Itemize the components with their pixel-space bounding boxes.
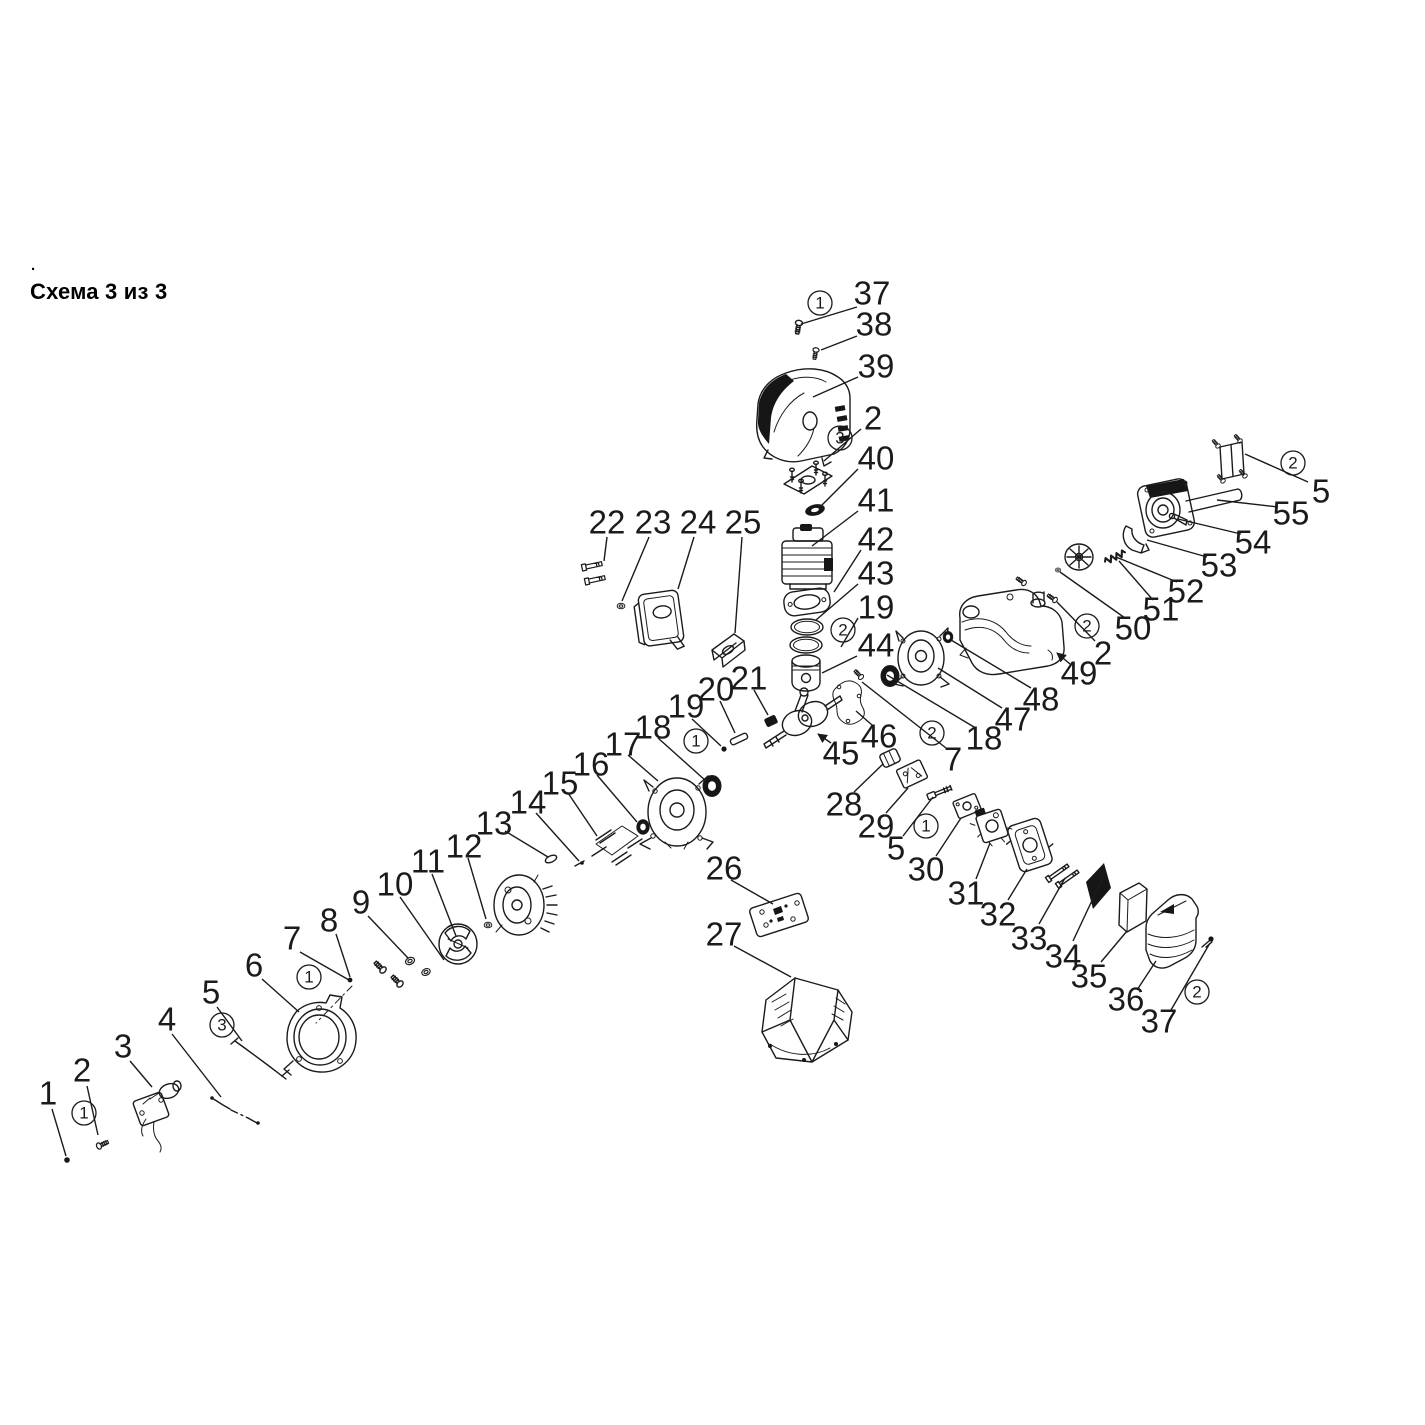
part-47-crankcase-right: [894, 628, 949, 687]
svg-text:1: 1: [79, 1104, 88, 1123]
svg-text:2: 2: [1192, 983, 1201, 1002]
part-number-2-44: 2: [1094, 635, 1112, 672]
part-number-45-37: 45: [823, 735, 860, 772]
part-number-7-16: 7: [283, 920, 301, 957]
part-number-24-30: 24: [680, 504, 717, 541]
part-number-2-11: 2: [73, 1052, 91, 1089]
part-3-ignition-coil: [132, 1081, 181, 1152]
part-19-dot: [721, 746, 726, 751]
leader-line-23-29: [622, 537, 649, 601]
part-number-40-4: 40: [858, 440, 895, 477]
leader-line-9-18: [368, 916, 408, 958]
part-screw-38: [811, 347, 819, 359]
part-12-nut: [484, 922, 492, 928]
callout-circled-1-0: 1: [808, 291, 832, 315]
part-number-41-5: 41: [858, 482, 895, 519]
part-15-16-studs: [592, 826, 642, 865]
part-number-8-17: 8: [320, 902, 338, 939]
svg-text:1: 1: [304, 968, 313, 987]
part-number-30-55: 30: [908, 851, 945, 888]
callout-circled-1-6: 1: [684, 729, 708, 753]
leader-line-53-48: [1147, 540, 1207, 557]
callout-circled-2-9: 2: [1281, 451, 1305, 475]
svg-text:3: 3: [835, 429, 844, 448]
leader-line-24-30: [678, 537, 694, 589]
part-43-piston-rings: [790, 619, 823, 653]
part-number-3-12: 3: [114, 1028, 132, 1065]
part-4-throttle-rod: [210, 1096, 260, 1125]
part-number-52-47: 52: [1168, 573, 1205, 610]
leader-line-1-10: [52, 1109, 66, 1156]
leader-line-39-2: [813, 377, 858, 397]
part-number-38-1: 38: [856, 306, 893, 343]
leader-line-22-28: [604, 537, 607, 561]
svg-text:2: 2: [838, 621, 847, 640]
svg-text:3: 3: [217, 1016, 226, 1035]
part-41-cylinder: [782, 524, 833, 589]
part-number-36-61: 36: [1108, 981, 1145, 1018]
part-number-54-49: 54: [1235, 524, 1272, 561]
callout-circled-2-11: 2: [1185, 980, 1209, 1004]
part-number-44-9: 44: [858, 627, 895, 664]
part-number-5-51: 5: [1312, 473, 1330, 510]
leader-line-12-21: [468, 858, 486, 919]
part-number-53-48: 53: [1201, 547, 1238, 584]
part-number-27-36: 27: [706, 916, 743, 953]
part-number-7-39: 7: [944, 741, 962, 778]
leader-line-44-9: [822, 656, 857, 673]
part-number-22-28: 22: [589, 504, 626, 541]
part-number-5-14: 5: [202, 974, 220, 1011]
part-16-seal: [637, 820, 650, 835]
part-23-nut: [617, 603, 625, 609]
diagram-page: . Схема 3 из 3: [0, 0, 1425, 1425]
part-number-42-6: 42: [858, 521, 895, 558]
part-number-21-34: 21: [731, 660, 768, 697]
part-48-fuel-tank: [960, 589, 1064, 674]
part-2-tank-screw-b: [1046, 593, 1058, 604]
part-55-clutch-drum: [1136, 477, 1242, 538]
leader-line-11-20: [432, 874, 456, 936]
leader-line-25-31: [735, 537, 742, 633]
leader-line-33-58: [1039, 878, 1065, 924]
leader-line-4-13: [172, 1034, 221, 1097]
part-number-4-13: 4: [158, 1001, 176, 1038]
part-32-air-filter-base: [1002, 815, 1059, 874]
part-number-26-35: 26: [706, 850, 743, 887]
part-22-muffler-bolts: [581, 560, 605, 585]
callout-circled-2-7: 2: [920, 721, 944, 745]
part-5-stop-wire: [231, 1038, 289, 1079]
part-24-muffler: [633, 590, 686, 655]
part-2-screw-left: [96, 1139, 110, 1150]
part-number-1-10: 1: [39, 1075, 57, 1112]
callout-circled-1-10: 1: [914, 814, 938, 838]
svg-text:1: 1: [815, 294, 824, 313]
part-44-piston: [792, 655, 820, 691]
svg-text:2: 2: [1082, 617, 1091, 636]
part-36-air-filter-cover: [1146, 895, 1198, 968]
part-7-crankcase-screw: [853, 669, 865, 681]
part-33-screws: [1045, 863, 1079, 889]
part-number-6-15: 6: [245, 947, 263, 984]
leader-line-6-15: [262, 979, 299, 1012]
part-50-washer: [1055, 568, 1061, 572]
part-number-19-8: 19: [858, 589, 895, 626]
svg-text:1: 1: [921, 817, 930, 836]
part-9-washer: [404, 956, 415, 966]
part-26-carb-plate: [749, 892, 810, 937]
part-52-spring: [1104, 550, 1126, 565]
part-number-46-38: 46: [861, 718, 898, 755]
leader-line-38-1: [821, 336, 857, 350]
leader-line-10-19: [400, 897, 444, 960]
leader-line-3-12: [130, 1061, 152, 1087]
callout-circled-2-8: 2: [1075, 614, 1099, 638]
part-number-13-22: 13: [476, 805, 513, 842]
part-number-55-50: 55: [1273, 495, 1310, 532]
leader-line-5-51: [1245, 454, 1308, 482]
svg-text:2: 2: [927, 724, 936, 743]
leader-line-48-42: [951, 640, 1031, 688]
part-2-tank-screw-a: [1015, 576, 1027, 587]
part-labels: 3738392404142431944123456789101112131415…: [39, 275, 1330, 1112]
part-number-20-33: 20: [698, 671, 735, 708]
part-number-18-27: 18: [635, 709, 672, 746]
callout-circled-1-5: 1: [297, 965, 321, 989]
svg-text:2: 2: [1288, 454, 1297, 473]
part-number-33-58: 33: [1011, 920, 1048, 957]
part-21-key-block: [764, 714, 779, 727]
exploded-parts-diagram: 3738392404142431944123456789101112131415…: [0, 0, 1425, 1425]
part-number-43-7: 43: [858, 555, 895, 592]
part-number-25-31: 25: [725, 504, 762, 541]
part-number-37-62: 37: [1141, 1003, 1178, 1040]
part-screw-37: [794, 320, 803, 335]
leader-line-54-49: [1178, 519, 1241, 534]
part-20-woodruff-key: [730, 732, 749, 745]
part-number-9-18: 9: [352, 884, 370, 921]
part-number-23-29: 23: [635, 504, 672, 541]
part-5-carb-screw: [927, 785, 952, 800]
part-35-filter-element: [1119, 883, 1147, 932]
part-10-washer: [421, 967, 432, 977]
part-number-35-60: 35: [1071, 958, 1108, 995]
part-27-bottom-cover: [762, 978, 852, 1062]
part-51-ratchet-plate: [1065, 544, 1093, 570]
part-number-11-20: 11: [411, 843, 445, 880]
part-number-5-54: 5: [887, 830, 905, 867]
part-11-clutch: [439, 924, 477, 964]
part-number-10-19: 10: [377, 866, 414, 903]
part-number-49-43: 49: [1061, 655, 1098, 692]
part-1-dot: [64, 1157, 70, 1163]
part-29-pump-plate: [896, 759, 928, 788]
leader-line-8-17: [336, 934, 350, 977]
leader-line-27-36: [734, 946, 791, 977]
part-13-flywheel: [494, 875, 557, 935]
leader-lines: [52, 307, 1308, 1156]
part-17-crankcase-left: [640, 776, 713, 849]
part-6-fan-housing: [284, 995, 356, 1075]
part-number-48-42: 48: [1023, 681, 1060, 718]
part-number-39-2: 39: [858, 348, 895, 385]
svg-text:1: 1: [691, 732, 700, 751]
part-18-oil-seal-left: [703, 776, 721, 797]
part-number-2-3: 2: [864, 400, 882, 437]
part-5-bracket-top-right: [1211, 433, 1248, 484]
